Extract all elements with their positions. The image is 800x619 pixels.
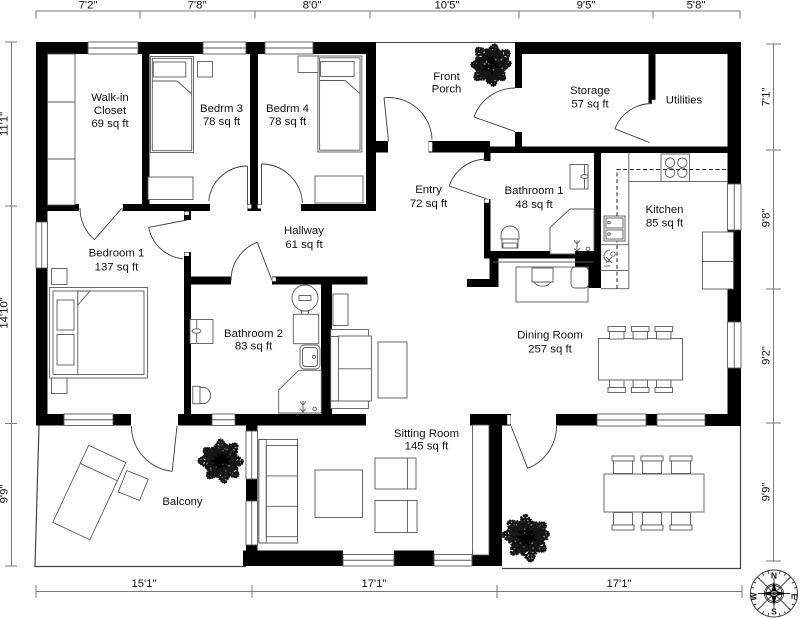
svg-text:7'1": 7'1" xyxy=(761,88,773,107)
svg-text:17'1": 17'1" xyxy=(361,578,386,590)
svg-text:17'1": 17'1" xyxy=(606,578,631,590)
svg-text:Walk-in: Walk-in xyxy=(91,92,129,104)
svg-text:7'8": 7'8" xyxy=(188,0,207,12)
svg-text:Closet: Closet xyxy=(94,105,127,117)
svg-text:Bedroom 1: Bedroom 1 xyxy=(89,248,145,260)
svg-text:Storage: Storage xyxy=(570,85,610,97)
svg-text:E: E xyxy=(790,594,800,600)
svg-text:Bathroom 2: Bathroom 2 xyxy=(224,328,283,340)
svg-text:15'1": 15'1" xyxy=(131,578,156,590)
svg-text:9'8": 9'8" xyxy=(761,209,773,228)
svg-text:Front: Front xyxy=(433,71,460,83)
svg-text:57 sq ft: 57 sq ft xyxy=(571,99,609,111)
svg-text:Balcony: Balcony xyxy=(162,496,203,508)
svg-text:9'2": 9'2" xyxy=(761,346,773,365)
svg-text:78 sq ft: 78 sq ft xyxy=(203,116,241,128)
svg-text:5'8": 5'8" xyxy=(687,0,706,12)
svg-text:11'1": 11'1" xyxy=(0,112,11,136)
svg-text:7'2": 7'2" xyxy=(79,0,98,12)
svg-text:9'5": 9'5" xyxy=(577,0,596,12)
svg-text:257 sq ft: 257 sq ft xyxy=(528,344,573,356)
svg-text:Hallway: Hallway xyxy=(284,225,324,237)
svg-text:N: N xyxy=(771,571,777,581)
svg-text:61 sq ft: 61 sq ft xyxy=(285,239,323,251)
svg-text:72 sq ft: 72 sq ft xyxy=(410,198,448,210)
svg-text:83 sq ft: 83 sq ft xyxy=(235,341,273,353)
svg-text:Kitchen: Kitchen xyxy=(646,204,684,216)
svg-text:Dining Room: Dining Room xyxy=(517,330,583,342)
svg-text:14'10": 14'10" xyxy=(0,297,11,328)
svg-text:Entry: Entry xyxy=(415,184,442,196)
svg-text:Bedrm 3: Bedrm 3 xyxy=(200,103,243,115)
svg-text:137 sq ft: 137 sq ft xyxy=(95,262,140,274)
svg-text:Utilities: Utilities xyxy=(666,95,703,107)
svg-text:85 sq ft: 85 sq ft xyxy=(646,218,684,230)
svg-text:10'5": 10'5" xyxy=(434,0,459,12)
svg-text:W: W xyxy=(749,592,759,601)
svg-text:9'9": 9'9" xyxy=(0,485,11,504)
svg-text:8'0": 8'0" xyxy=(303,0,322,12)
svg-text:Sitting Room: Sitting Room xyxy=(394,428,459,440)
svg-text:Porch: Porch xyxy=(432,84,462,96)
svg-text:9'9": 9'9" xyxy=(761,483,773,502)
svg-text:69 sq ft: 69 sq ft xyxy=(91,118,129,130)
svg-text:145 sq ft: 145 sq ft xyxy=(405,441,450,453)
svg-text:S: S xyxy=(771,607,777,617)
svg-text:Bathroom 1: Bathroom 1 xyxy=(505,185,564,197)
svg-text:Bedrm 4: Bedrm 4 xyxy=(266,103,309,115)
svg-text:78 sq ft: 78 sq ft xyxy=(269,116,307,128)
svg-text:48 sq ft: 48 sq ft xyxy=(515,199,553,211)
